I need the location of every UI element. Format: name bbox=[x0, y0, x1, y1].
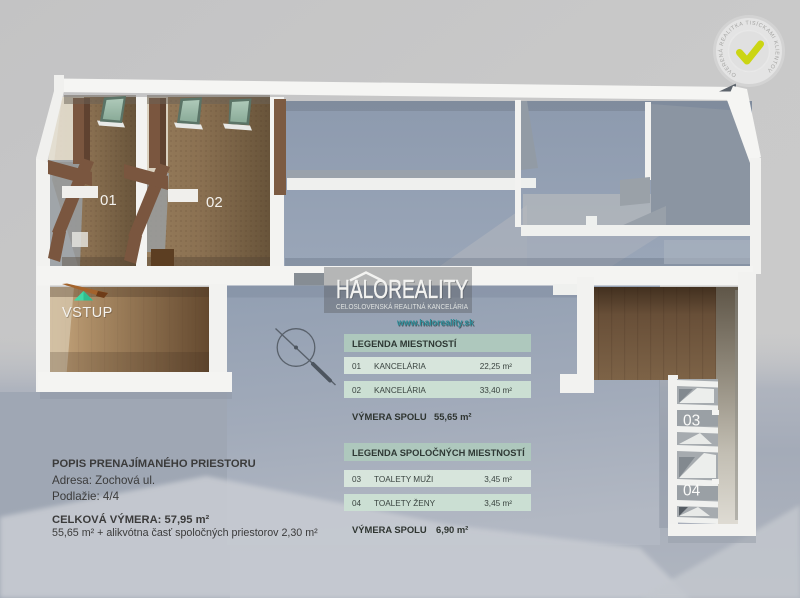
svg-text:KANCELÁRIA: KANCELÁRIA bbox=[374, 361, 426, 371]
svg-text:CELKOVÁ VÝMERA: 57,95 m²: CELKOVÁ VÝMERA: 57,95 m² bbox=[52, 513, 210, 526]
svg-text:6,90 m²: 6,90 m² bbox=[436, 524, 468, 535]
svg-text:VSTUP: VSTUP bbox=[62, 305, 113, 321]
svg-text:02: 02 bbox=[206, 194, 223, 211]
svg-text:Podlažie: 4/4: Podlažie: 4/4 bbox=[52, 490, 120, 503]
svg-text:01: 01 bbox=[352, 362, 362, 371]
svg-text:04: 04 bbox=[352, 499, 362, 508]
svg-text:VÝMERA SPOLU: VÝMERA SPOLU bbox=[352, 411, 427, 422]
svg-text:www.haloreality.sk: www.haloreality.sk bbox=[396, 317, 475, 328]
svg-text:LEGENDA SPOLOČNÝCH MIESTNOSTÍ: LEGENDA SPOLOČNÝCH MIESTNOSTÍ bbox=[352, 447, 525, 458]
svg-text:VÝMERA SPOLU: VÝMERA SPOLU bbox=[352, 524, 427, 535]
svg-text:55,65 m² + alikvótna časť spol: 55,65 m² + alikvótna časť spoločných pri… bbox=[52, 527, 318, 539]
svg-text:3,45 m²: 3,45 m² bbox=[484, 499, 512, 508]
svg-text:01: 01 bbox=[100, 192, 117, 209]
svg-text:LEGENDA MIESTNOSTÍ: LEGENDA MIESTNOSTÍ bbox=[352, 339, 457, 349]
svg-text:HALOREALITY: HALOREALITY bbox=[336, 274, 468, 304]
svg-text:03: 03 bbox=[683, 413, 700, 430]
svg-text:03: 03 bbox=[352, 475, 362, 484]
svg-text:Adresa: Zochová ul.: Adresa: Zochová ul. bbox=[52, 474, 155, 487]
svg-text:55,65 m²: 55,65 m² bbox=[434, 411, 472, 422]
svg-text:02: 02 bbox=[352, 386, 362, 395]
svg-text:22,25 m²: 22,25 m² bbox=[480, 362, 513, 371]
svg-text:3,45 m²: 3,45 m² bbox=[484, 475, 512, 484]
svg-text:TOALETY ŽENY: TOALETY ŽENY bbox=[374, 498, 436, 508]
svg-text:POPIS PRENAJÍMANÉHO PRIESTORU: POPIS PRENAJÍMANÉHO PRIESTORU bbox=[52, 457, 256, 470]
svg-text:CELOSLOVENSKÁ REALITNÁ KANCELÁ: CELOSLOVENSKÁ REALITNÁ KANCELÁRIA bbox=[336, 302, 468, 311]
svg-text:04: 04 bbox=[683, 483, 701, 500]
svg-text:TOALETY MUŽI: TOALETY MUŽI bbox=[374, 474, 433, 484]
svg-text:KANCELÁRIA: KANCELÁRIA bbox=[374, 385, 426, 395]
svg-text:33,40 m²: 33,40 m² bbox=[480, 386, 513, 395]
